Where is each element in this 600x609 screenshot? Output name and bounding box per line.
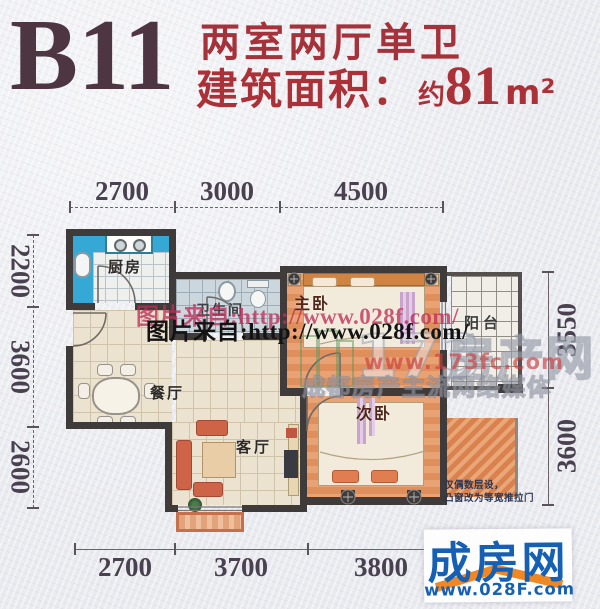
note-line-2: 凸窗改为等宽推拉门: [444, 490, 534, 504]
dining-chair: [120, 364, 136, 376]
dim-top-2: 3000: [200, 176, 254, 207]
plan-code: B11: [10, 2, 174, 109]
watermark-slogan: 成都房产主流网络媒体: [302, 368, 552, 402]
nightstand: [288, 274, 301, 286]
dim-top-3: 4500: [334, 176, 388, 207]
note-line-1: 仅偶数层设，: [444, 477, 504, 491]
toilet-tank: [247, 280, 269, 288]
area-approx: 约: [418, 73, 445, 112]
dim-tick: [442, 201, 444, 213]
wall: [66, 422, 172, 429]
dim-right-2: 3600: [552, 419, 583, 473]
wall: [300, 497, 447, 505]
column-mark: [341, 490, 355, 504]
dim-left-3: 2600: [5, 440, 36, 494]
dim-left-2: 3600: [5, 340, 36, 394]
dim-line-bottom: [75, 549, 460, 550]
tv: [284, 450, 298, 478]
dim-top-1: 2700: [95, 176, 149, 207]
coffee-table: [202, 442, 236, 478]
av-device: [286, 428, 297, 438]
dim-left-1: 2200: [5, 244, 36, 298]
area-label: 建筑面积：: [196, 56, 416, 117]
plant-icon: [188, 498, 202, 512]
stove: [105, 234, 153, 254]
wall: [66, 229, 73, 310]
dim-tick: [27, 507, 39, 509]
watermark-source-black: 图片来自:http://www.028f.com/: [146, 312, 469, 346]
dim-tick: [307, 543, 309, 555]
wall: [280, 266, 447, 273]
dining-chair: [78, 383, 90, 399]
room-label-kitchen: 厨房: [108, 256, 142, 277]
wall: [66, 229, 176, 236]
dim-bottom-2: 3700: [214, 552, 268, 583]
dim-bottom-3: 3800: [354, 552, 408, 583]
armchair: [196, 420, 228, 436]
stove-burner-icon: [114, 239, 127, 252]
dim-tick: [542, 504, 554, 506]
area-value: 81: [445, 54, 502, 117]
room-label-living: 客厅: [236, 436, 272, 457]
bay-window-outer-line: [515, 418, 518, 497]
dim-line-top: [70, 207, 443, 208]
dim-tick: [174, 543, 176, 555]
sofa: [176, 440, 192, 490]
armchair: [193, 482, 223, 497]
kitchen-sink: [74, 252, 91, 278]
bay-window-box: [176, 512, 244, 532]
dim-bottom-1: 2700: [98, 552, 152, 583]
wall: [66, 346, 73, 429]
site-logo: 成房网 www.028F.com: [424, 528, 573, 602]
dim-tick: [542, 271, 554, 273]
dim-tick: [27, 306, 39, 308]
wall: [242, 505, 307, 512]
area-unit: m²: [505, 73, 555, 113]
area-line: 建筑面积： 约 81 m²: [196, 54, 555, 117]
wall: [165, 422, 172, 512]
newspaper-floorplan-scan: B11 两室两厅单卫 建筑面积： 约 81 m² 2700 3000 4500 …: [0, 0, 600, 609]
pillow: [332, 470, 359, 483]
wall: [300, 388, 307, 512]
dining-table: [92, 377, 140, 415]
dim-tick: [174, 201, 176, 213]
dim-tick: [27, 234, 39, 236]
column-mark: [407, 490, 421, 504]
dim-tick: [279, 201, 281, 213]
stove-burner-icon: [133, 239, 146, 252]
dim-tick: [69, 201, 71, 213]
wall: [66, 303, 95, 310]
room-label-second-bedroom: 次卧: [356, 400, 392, 424]
room-label-dining: 餐厅: [150, 382, 184, 403]
dining-chair: [97, 364, 113, 376]
logo-url: www.028F.com: [424, 579, 572, 599]
dim-tick: [74, 543, 76, 555]
wall: [169, 272, 287, 279]
balcony-wall: [447, 272, 522, 276]
pillow: [371, 470, 398, 483]
nightstand: [426, 274, 439, 286]
dim-tick: [27, 426, 39, 428]
